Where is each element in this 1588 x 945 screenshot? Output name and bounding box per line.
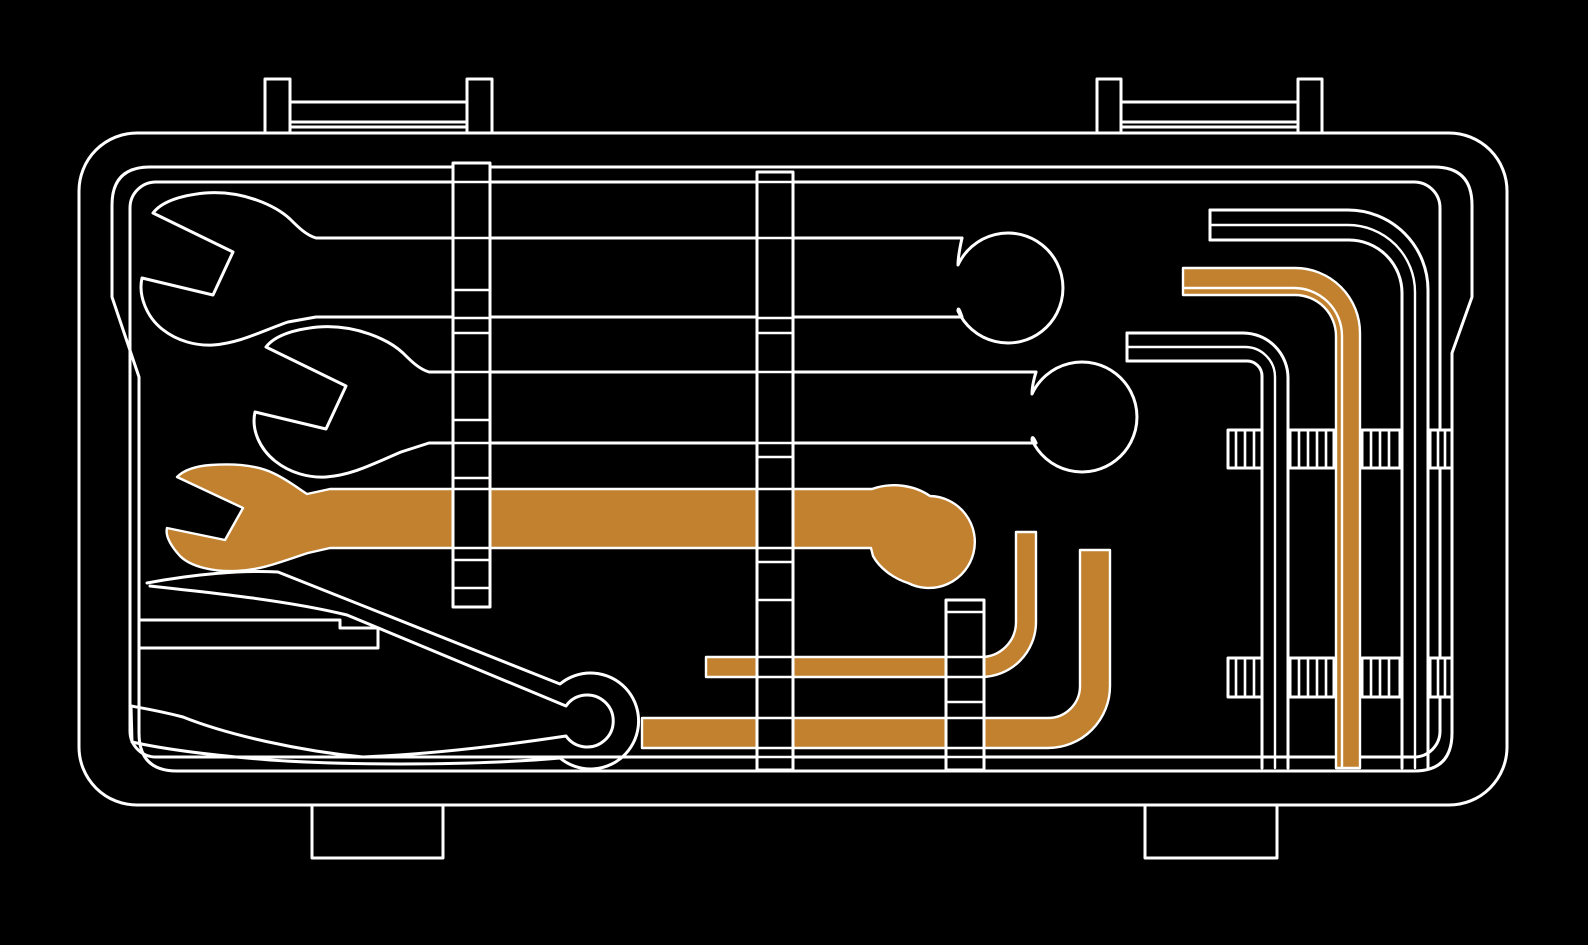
strap-2 [757,172,793,770]
strap-1-band [453,163,490,607]
strap-row-lower-seg-4 [1430,658,1452,697]
strap-3-band [946,600,984,770]
strap-row-upper-seg-4 [1430,430,1452,468]
strap-row-upper-seg-2 [1290,430,1334,468]
strap-row-lower-seg-2 [1290,658,1334,697]
illustration-tool-kit [0,0,1588,945]
strap-1 [453,163,490,607]
strap-2-band [757,172,793,770]
tool-kit-canvas [0,0,1588,945]
strap-3 [946,600,984,770]
